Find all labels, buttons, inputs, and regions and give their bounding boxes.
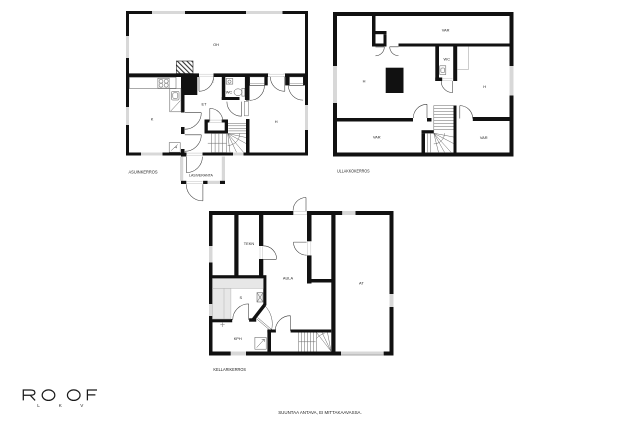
svg-text:KPH: KPH bbox=[234, 336, 242, 341]
svg-text:SUUNTAA ANTAVA, EI MITTAKAAVAS: SUUNTAA ANTAVA, EI MITTAKAAVASSA. bbox=[278, 410, 362, 415]
svg-text:ET: ET bbox=[202, 101, 208, 106]
svg-text:LASIVERANTA: LASIVERANTA bbox=[189, 173, 213, 177]
svg-text:VAR: VAR bbox=[442, 28, 450, 33]
svg-text:V: V bbox=[80, 403, 84, 408]
svg-text:H: H bbox=[275, 119, 278, 124]
svg-text:OH: OH bbox=[213, 42, 219, 47]
svg-text:WC: WC bbox=[444, 57, 451, 62]
svg-text:TEKN: TEKN bbox=[244, 241, 255, 246]
svg-text:AT: AT bbox=[359, 281, 364, 286]
svg-text:ULLAKKOKERROS: ULLAKKOKERROS bbox=[337, 168, 370, 173]
svg-text:K: K bbox=[151, 117, 154, 122]
svg-text:S: S bbox=[239, 295, 242, 300]
svg-text:L: L bbox=[37, 403, 40, 408]
svg-text:H: H bbox=[483, 84, 486, 89]
svg-text:VAR: VAR bbox=[480, 135, 488, 140]
svg-text:AULA: AULA bbox=[283, 276, 294, 281]
svg-text:K: K bbox=[59, 403, 63, 408]
svg-text:VAR: VAR bbox=[373, 135, 381, 140]
svg-text:ASUINKERROS: ASUINKERROS bbox=[129, 169, 158, 174]
svg-text:KELLARIKERROS: KELLARIKERROS bbox=[213, 367, 246, 372]
svg-text:H: H bbox=[363, 79, 366, 84]
svg-text:WC: WC bbox=[226, 90, 233, 95]
